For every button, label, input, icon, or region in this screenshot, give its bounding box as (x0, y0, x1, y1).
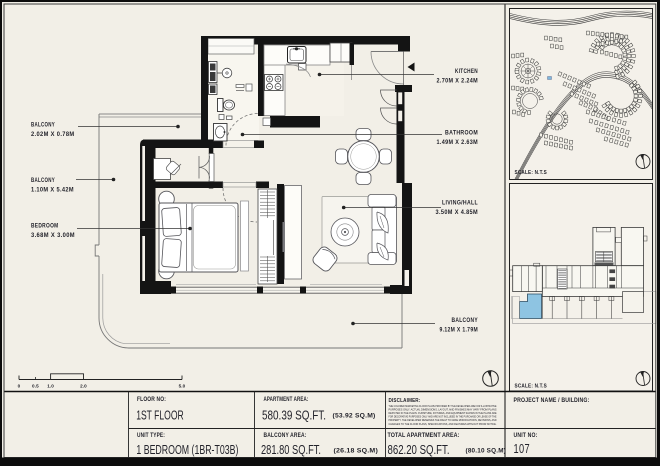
svg-text:PROPERTY. THE DEVELOPER RESERV: PROPERTY. THE DEVELOPER RESERVES THE RIG… (389, 418, 497, 422)
svg-text:SCALE: N.T.S: SCALE: N.T.S (515, 384, 548, 390)
svg-text:2.02M X 0.78M: 2.02M X 0.78M (31, 131, 75, 138)
svg-text:DEPICTED IN THE PLANS. FURNITU: DEPICTED IN THE PLANS. FURNITURE, FIXTUR… (389, 411, 497, 415)
svg-text:TOTAL APARTMENT AREA:: TOTAL APARTMENT AREA: (388, 432, 460, 439)
svg-text:UNIT TYPE:: UNIT TYPE: (137, 432, 165, 439)
svg-text:862.20 SQ.FT.: 862.20 SQ.FT. (388, 442, 450, 457)
svg-text:0.5: 0.5 (32, 384, 39, 389)
svg-text:BALCONY: BALCONY (31, 122, 55, 129)
svg-text:FLOOR NO:: FLOOR NO: (137, 396, 166, 403)
svg-text:FOR DECORATIVE PURPOSES ONLY A: FOR DECORATIVE PURPOSES ONLY AND ARE NOT… (389, 415, 497, 419)
svg-text:1.49M X 2.63M: 1.49M X 2.63M (437, 139, 479, 146)
svg-text:BALCONY: BALCONY (452, 317, 479, 324)
svg-text:PROJECT NAME / BUILDING:: PROJECT NAME / BUILDING: (514, 397, 590, 404)
svg-text:THE COLORED MARKETING FLOOR PL: THE COLORED MARKETING FLOOR PLANS PROVID… (389, 404, 497, 408)
svg-text:1ST FLOOR: 1ST FLOOR (136, 408, 184, 423)
svg-text:5.0: 5.0 (179, 384, 186, 389)
svg-text:(80.10 SQ.M): (80.10 SQ.M) (466, 448, 507, 455)
svg-text:(26.18 SQ.M): (26.18 SQ.M) (334, 448, 379, 455)
svg-text:APARTMENT AREA:: APARTMENT AREA: (264, 396, 309, 403)
svg-text:281.80 SQ.FT.: 281.80 SQ.FT. (261, 442, 321, 457)
svg-text:UNIT NO:: UNIT NO: (514, 432, 538, 439)
svg-text:1 BEDROOM (1BR-T03B): 1 BEDROOM (1BR-T03B) (136, 442, 238, 457)
svg-text:BALCONY AREA:: BALCONY AREA: (264, 432, 307, 439)
svg-text:LIVING/HALL: LIVING/HALL (442, 200, 478, 207)
svg-text:SCALE: N.T.S: SCALE: N.T.S (515, 170, 548, 176)
svg-text:1.0: 1.0 (47, 384, 54, 389)
svg-text:DISCLAIMER:: DISCLAIMER: (389, 398, 421, 404)
svg-text:CHANGES TO THE FLOOR PLANS, SP: CHANGES TO THE FLOOR PLANS, SPECIFICATIO… (389, 422, 497, 426)
svg-text:BALCONY: BALCONY (31, 177, 55, 184)
svg-text:2.0: 2.0 (80, 384, 87, 389)
svg-text:3.50M X 4.85M: 3.50M X 4.85M (436, 209, 479, 216)
svg-text:3.68M X 3.00M: 3.68M X 3.00M (31, 232, 75, 239)
svg-text:BEDROOM: BEDROOM (31, 223, 59, 230)
svg-text:1.10M X 5.42M: 1.10M X 5.42M (31, 187, 74, 194)
svg-text:2.70M X 2.24M: 2.70M X 2.24M (437, 78, 479, 85)
svg-text:(53.92 SQ.M): (53.92 SQ.M) (333, 413, 376, 420)
svg-text:KITCHEN: KITCHEN (455, 68, 478, 75)
svg-text:107: 107 (514, 442, 531, 456)
svg-text:PURPOSES ONLY. ACTUAL DIMENSIO: PURPOSES ONLY. ACTUAL DIMENSIONS, LAYOUT… (389, 407, 497, 411)
svg-text:BATHROOM: BATHROOM (445, 130, 478, 137)
svg-text:580.39 SQ.FT.: 580.39 SQ.FT. (262, 408, 326, 423)
svg-text:9.12M X 1.79M: 9.12M X 1.79M (440, 327, 479, 334)
svg-text:0: 0 (18, 384, 21, 389)
